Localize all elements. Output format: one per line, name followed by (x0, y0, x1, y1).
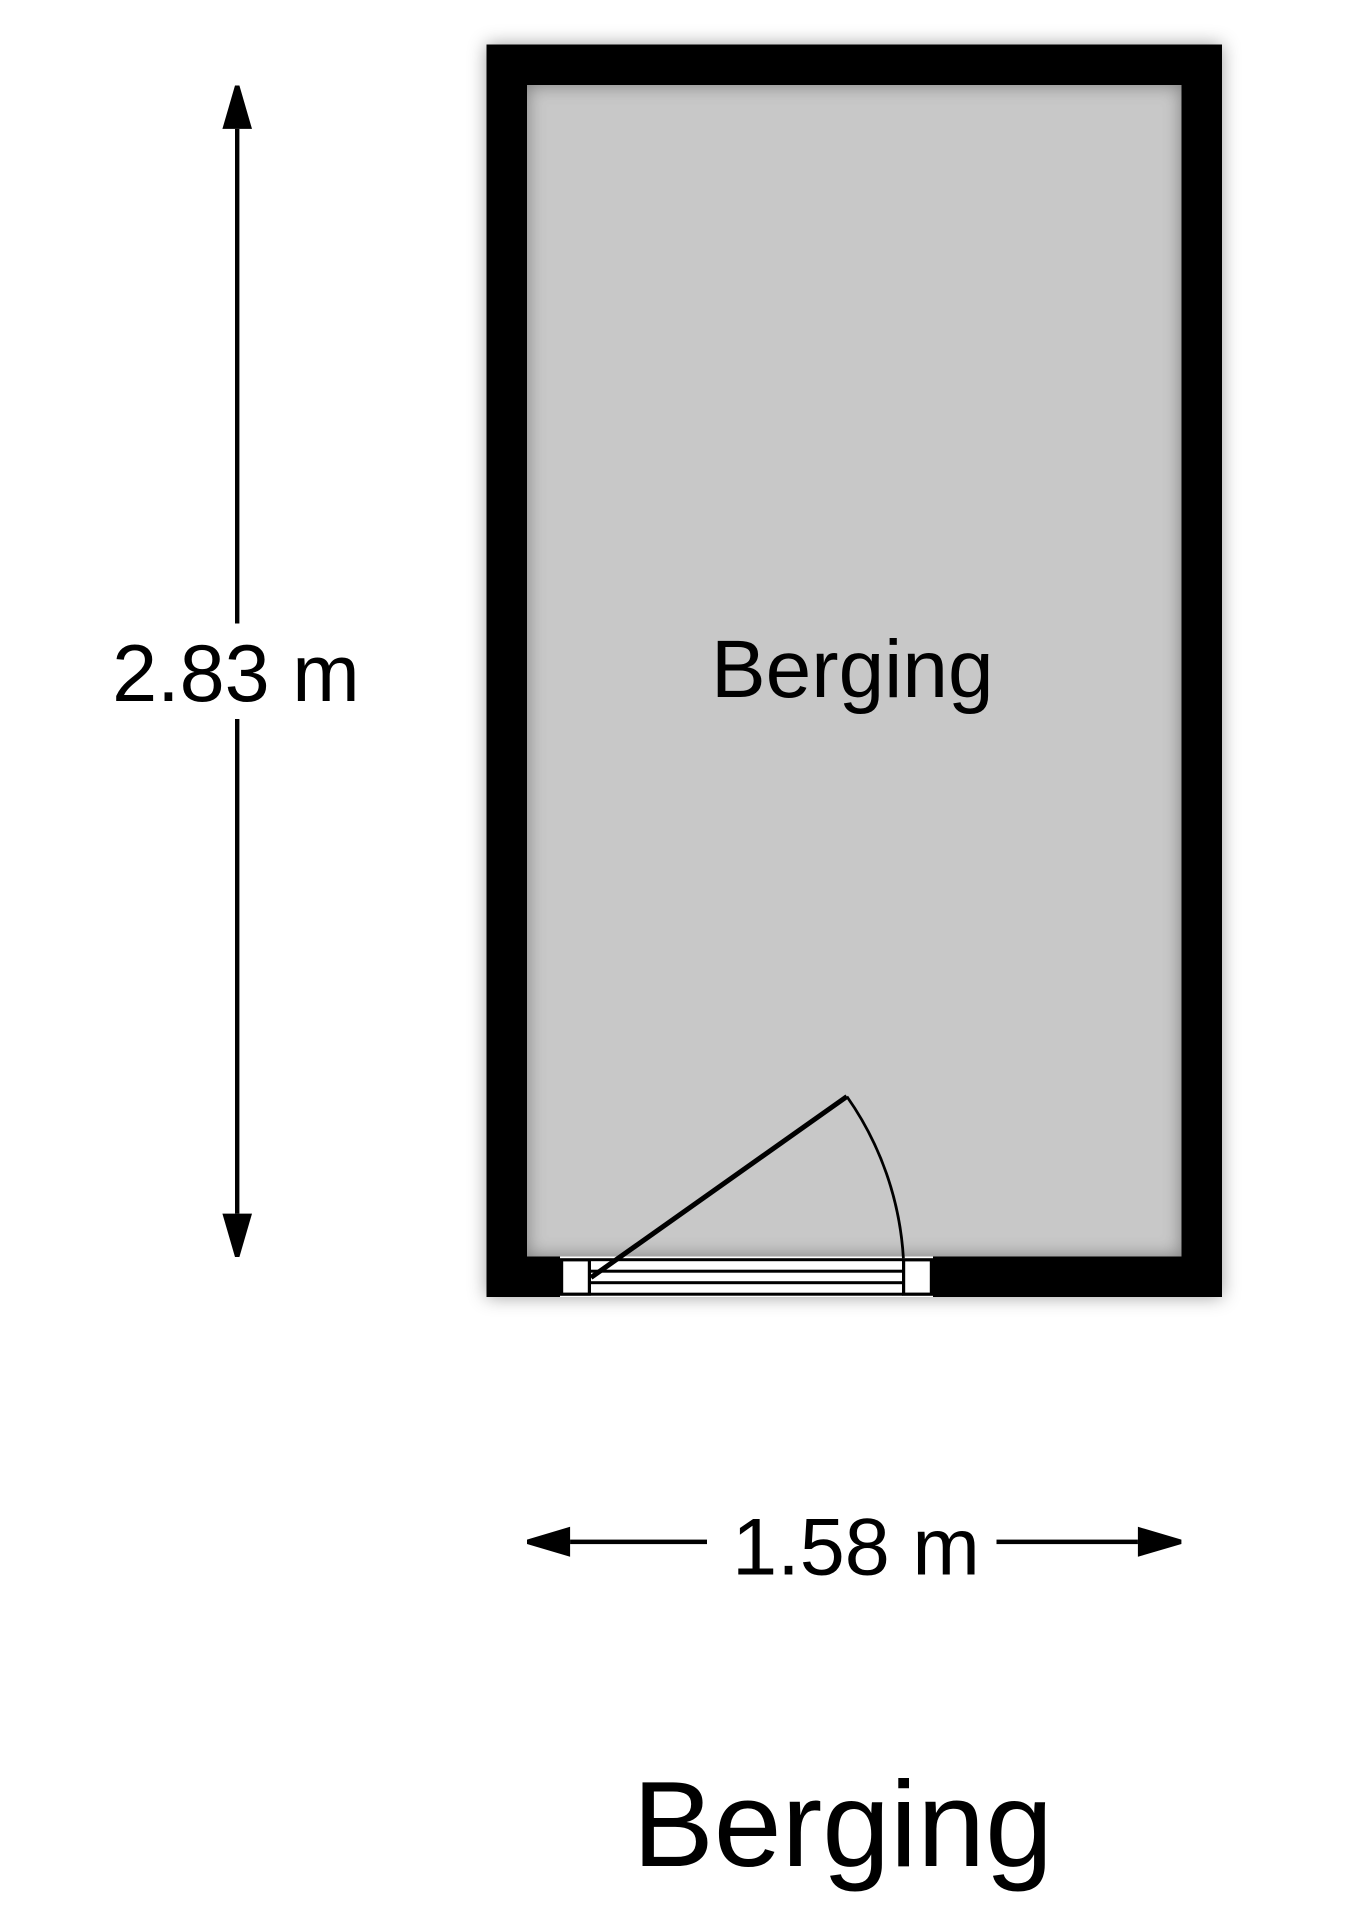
svg-text:1.58 m: 1.58 m (732, 1503, 980, 1593)
svg-text:2.83 m: 2.83 m (112, 629, 360, 719)
svg-text:Berging: Berging (632, 1756, 1053, 1892)
svg-text:Berging: Berging (711, 624, 994, 715)
